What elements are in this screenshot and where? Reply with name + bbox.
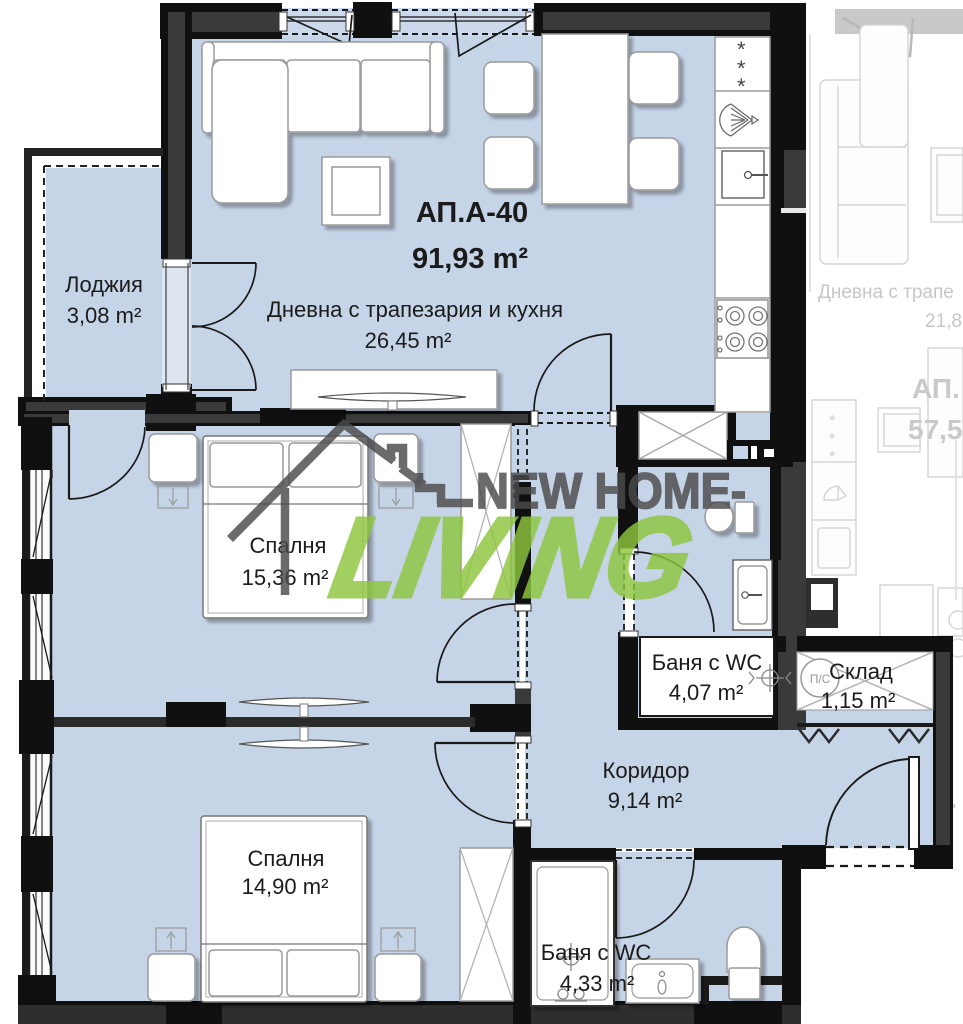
svg-text:Баня с WC: Баня с WC (652, 650, 763, 675)
svg-text:4,07 m²: 4,07 m² (669, 680, 744, 705)
svg-text:*: * (829, 449, 835, 466)
svg-text:Спалня: Спалня (248, 846, 325, 871)
svg-text:Лоджия: Лоджия (65, 272, 143, 297)
svg-text:3,08 m²: 3,08 m² (67, 303, 142, 328)
svg-text:*: * (737, 74, 746, 99)
svg-text:9,14 m²: 9,14 m² (608, 788, 683, 813)
svg-text:57,5: 57,5 (908, 414, 963, 445)
svg-text:АП.А-40: АП.А-40 (416, 197, 528, 229)
svg-text:Коридор: Коридор (603, 758, 690, 783)
svg-text:Баня с WC: Баня с WC (541, 940, 652, 965)
svg-text:1,15 m²: 1,15 m² (821, 688, 896, 713)
svg-text:АП.: АП. (912, 373, 960, 404)
svg-text:*: * (829, 431, 835, 448)
svg-text:26,45 m²: 26,45 m² (365, 328, 452, 353)
svg-text:Дневна с трапе: Дневна с трапе (818, 282, 954, 303)
svg-text:LIVING: LIVING (324, 495, 701, 620)
svg-text:Дневна с трапезария и кухня: Дневна с трапезария и кухня (267, 297, 563, 322)
svg-text:4,33 m²: 4,33 m² (560, 971, 635, 996)
svg-text:П/С: П/С (810, 672, 831, 686)
svg-text:*: * (829, 413, 835, 430)
svg-text:21,8: 21,8 (925, 311, 962, 332)
svg-text:Склад: Склад (829, 659, 893, 684)
svg-text:91,93 m²: 91,93 m² (412, 243, 528, 275)
svg-text:14,90 m²: 14,90 m² (242, 874, 329, 899)
